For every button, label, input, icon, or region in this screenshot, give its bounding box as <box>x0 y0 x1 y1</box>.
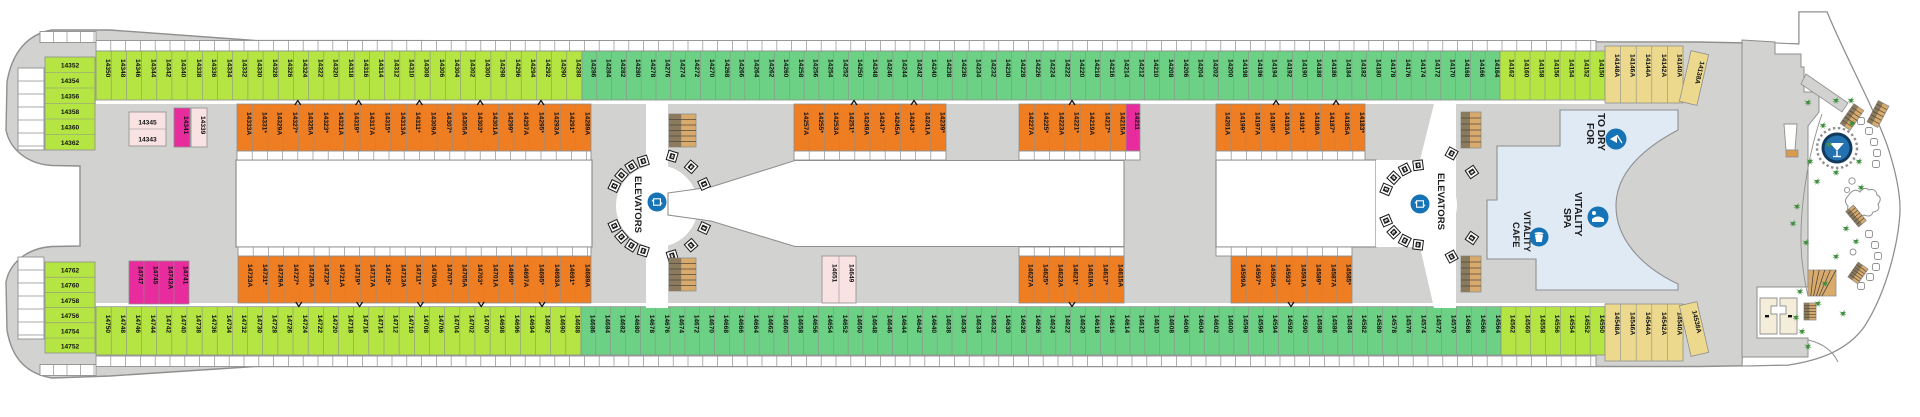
svg-text:14616: 14616 <box>1108 315 1115 334</box>
svg-text:14713A: 14713A <box>399 264 406 287</box>
svg-text:14348: 14348 <box>119 59 126 78</box>
svg-text:14326: 14326 <box>286 59 293 78</box>
svg-text:14324: 14324 <box>301 59 308 78</box>
svg-text:14566: 14566 <box>1479 315 1486 334</box>
svg-text:14636: 14636 <box>960 315 967 334</box>
svg-text:14705A: 14705A <box>461 264 468 287</box>
svg-text:14691*: 14691* <box>568 264 575 285</box>
svg-text:14262: 14262 <box>767 59 774 78</box>
svg-text:14762: 14762 <box>61 268 80 275</box>
svg-text:14562: 14562 <box>1509 315 1516 334</box>
svg-text:14674: 14674 <box>678 315 685 334</box>
svg-text:14268: 14268 <box>723 59 730 78</box>
svg-text:14345: 14345 <box>138 120 157 127</box>
svg-text:14585*: 14585* <box>1345 264 1352 285</box>
svg-text:14740: 14740 <box>180 315 187 334</box>
svg-text:14576: 14576 <box>1405 315 1412 334</box>
svg-text:14232: 14232 <box>989 59 996 78</box>
svg-text:14729A: 14729A <box>277 264 284 287</box>
svg-text:14194: 14194 <box>1271 59 1278 78</box>
svg-text:14552: 14552 <box>1583 315 1590 334</box>
svg-text:14225*: 14225* <box>1042 112 1049 133</box>
svg-text:14343: 14343 <box>138 137 157 144</box>
svg-text:14170: 14170 <box>1448 59 1455 78</box>
svg-text:14758: 14758 <box>61 298 80 305</box>
svg-text:14294: 14294 <box>529 59 536 78</box>
svg-text:14289A: 14289A <box>584 112 591 135</box>
svg-text:14707*: 14707* <box>445 264 452 285</box>
svg-text:14632: 14632 <box>989 315 996 334</box>
svg-text:14250: 14250 <box>856 59 863 78</box>
svg-text:14184: 14184 <box>1345 59 1352 78</box>
svg-text:14340: 14340 <box>180 59 187 78</box>
svg-text:14709A: 14709A <box>430 264 437 287</box>
svg-text:14180: 14180 <box>1374 59 1381 78</box>
svg-text:14305A: 14305A <box>460 112 467 135</box>
svg-text:14148A: 14148A <box>1613 54 1620 77</box>
svg-text:14331*: 14331* <box>260 112 267 133</box>
svg-text:14746: 14746 <box>134 315 141 334</box>
svg-text:14554: 14554 <box>1568 315 1575 334</box>
svg-text:14217*: 14217* <box>1103 112 1110 133</box>
svg-text:14624: 14624 <box>1049 315 1056 334</box>
svg-text:14309A: 14309A <box>430 112 437 135</box>
svg-text:14642: 14642 <box>915 315 922 334</box>
svg-text:14204: 14204 <box>1197 59 1204 78</box>
svg-text:14712: 14712 <box>392 315 399 334</box>
svg-text:14288: 14288 <box>575 59 582 78</box>
svg-text:14162: 14162 <box>1508 59 1515 78</box>
svg-text:14760: 14760 <box>61 283 80 290</box>
svg-text:14700: 14700 <box>483 315 490 334</box>
svg-text:14342: 14342 <box>165 59 172 78</box>
svg-text:14264: 14264 <box>753 59 760 78</box>
svg-text:ELEVATORS: ELEVATORS <box>1435 173 1446 231</box>
svg-text:14164: 14164 <box>1493 59 1500 78</box>
svg-text:14197A: 14197A <box>1254 112 1261 135</box>
svg-text:14239*: 14239* <box>939 112 946 133</box>
svg-text:14214: 14214 <box>1123 59 1130 78</box>
svg-text:14544A: 14544A <box>1644 312 1651 335</box>
svg-text:14260: 14260 <box>782 59 789 78</box>
svg-text:14251*: 14251* <box>847 112 854 133</box>
svg-text:14154: 14154 <box>1568 59 1575 78</box>
svg-text:14627A: 14627A <box>1027 264 1034 287</box>
svg-text:14188: 14188 <box>1315 59 1322 78</box>
svg-text:14570: 14570 <box>1449 315 1456 334</box>
svg-text:14198: 14198 <box>1241 59 1248 78</box>
svg-text:14658: 14658 <box>796 315 803 334</box>
svg-text:14158: 14158 <box>1538 59 1545 78</box>
svg-text:14293A: 14293A <box>553 112 560 135</box>
svg-text:14321A: 14321A <box>337 112 344 135</box>
svg-text:14722: 14722 <box>316 315 323 334</box>
svg-text:14236: 14236 <box>960 59 967 78</box>
svg-text:14315*: 14315* <box>383 112 390 133</box>
svg-text:14142A: 14142A <box>1660 54 1667 77</box>
svg-text:ELEVATORS: ELEVATORS <box>632 176 643 234</box>
svg-text:14650: 14650 <box>856 315 863 334</box>
svg-text:14360: 14360 <box>61 125 80 132</box>
svg-text:14311*: 14311* <box>414 112 421 133</box>
svg-text:14312: 14312 <box>392 59 399 78</box>
svg-text:14612: 14612 <box>1138 315 1145 334</box>
svg-text:14717A: 14717A <box>369 264 376 287</box>
svg-text:14719*: 14719* <box>353 264 360 285</box>
svg-text:14596: 14596 <box>1256 315 1263 334</box>
svg-text:14572: 14572 <box>1434 315 1441 334</box>
svg-text:14247*: 14247* <box>878 112 885 133</box>
svg-text:14726: 14726 <box>286 315 293 334</box>
svg-text:14574: 14574 <box>1420 315 1427 334</box>
svg-text:14582: 14582 <box>1360 315 1367 334</box>
svg-text:14600: 14600 <box>1227 315 1234 334</box>
svg-text:14291*: 14291* <box>568 112 575 133</box>
svg-text:14644: 14644 <box>900 315 907 334</box>
svg-text:TO DRY: TO DRY <box>1595 113 1606 151</box>
svg-text:14622: 14622 <box>1064 315 1071 334</box>
svg-text:14210: 14210 <box>1152 59 1159 78</box>
svg-text:14290: 14290 <box>559 59 566 78</box>
svg-text:14302: 14302 <box>468 59 475 78</box>
svg-text:14166: 14166 <box>1478 59 1485 78</box>
svg-text:14550: 14550 <box>1598 315 1605 334</box>
svg-text:14593*: 14593* <box>1284 264 1291 285</box>
svg-text:14731*: 14731* <box>261 264 268 285</box>
svg-text:14308: 14308 <box>423 59 430 78</box>
svg-text:14747: 14747 <box>137 266 144 285</box>
svg-text:14246: 14246 <box>886 59 893 78</box>
svg-text:14696: 14696 <box>513 315 520 334</box>
svg-text:14718: 14718 <box>346 315 353 334</box>
svg-text:14704: 14704 <box>452 315 459 334</box>
svg-text:14564: 14564 <box>1494 315 1501 334</box>
svg-text:14193A: 14193A <box>1283 112 1290 135</box>
svg-text:14654: 14654 <box>826 315 833 334</box>
svg-text:14652: 14652 <box>841 315 848 334</box>
svg-text:14199*: 14199* <box>1239 112 1246 133</box>
svg-text:14256: 14256 <box>812 59 819 78</box>
svg-text:14734: 14734 <box>225 315 232 334</box>
svg-text:14684: 14684 <box>604 315 611 334</box>
svg-text:14725A: 14725A <box>307 264 314 287</box>
svg-text:14542A: 14542A <box>1660 312 1667 335</box>
svg-text:14338: 14338 <box>195 59 202 78</box>
svg-text:14222: 14222 <box>1063 59 1070 78</box>
svg-text:14625*: 14625* <box>1042 264 1049 285</box>
svg-text:14270: 14270 <box>708 59 715 78</box>
svg-text:14736: 14736 <box>210 315 217 334</box>
svg-text:14319*: 14319* <box>353 112 360 133</box>
svg-text:14630: 14630 <box>1004 315 1011 334</box>
svg-text:14711*: 14711* <box>415 264 422 285</box>
svg-text:14266: 14266 <box>738 59 745 78</box>
svg-text:14327*: 14327* <box>291 112 298 133</box>
svg-text:14284: 14284 <box>604 59 611 78</box>
svg-text:14660: 14660 <box>782 315 789 334</box>
svg-text:14742: 14742 <box>164 315 171 334</box>
svg-text:14699*: 14699* <box>507 264 514 285</box>
svg-text:14144A: 14144A <box>1644 54 1651 77</box>
svg-text:14215A: 14215A <box>1119 112 1126 135</box>
svg-text:14352: 14352 <box>61 63 80 70</box>
svg-text:14599A: 14599A <box>1239 264 1246 287</box>
svg-text:14619A: 14619A <box>1087 264 1094 287</box>
svg-text:14297A: 14297A <box>522 112 529 135</box>
svg-text:14356: 14356 <box>61 94 80 101</box>
svg-text:14190: 14190 <box>1300 59 1307 78</box>
svg-text:14695*: 14695* <box>538 264 545 285</box>
svg-text:14168: 14168 <box>1463 59 1470 78</box>
svg-text:14662: 14662 <box>767 315 774 334</box>
svg-text:14227A: 14227A <box>1027 112 1034 135</box>
svg-text:14694: 14694 <box>528 315 535 334</box>
svg-text:14614: 14614 <box>1123 315 1130 334</box>
svg-text:14664: 14664 <box>752 315 759 334</box>
svg-text:14640: 14640 <box>930 315 937 334</box>
svg-text:14329A: 14329A <box>276 112 283 135</box>
svg-text:14332: 14332 <box>241 59 248 78</box>
svg-text:14244: 14244 <box>901 59 908 78</box>
svg-text:14716: 14716 <box>361 315 368 334</box>
svg-text:14620: 14620 <box>1078 315 1085 334</box>
svg-text:14656: 14656 <box>811 315 818 334</box>
svg-text:14201A: 14201A <box>1224 112 1231 135</box>
svg-text:14715*: 14715* <box>384 264 391 285</box>
svg-text:14230: 14230 <box>1004 59 1011 78</box>
svg-text:14212: 14212 <box>1137 59 1144 78</box>
svg-text:14750: 14750 <box>104 315 111 334</box>
svg-text:FOR: FOR <box>1584 123 1595 145</box>
svg-text:14738: 14738 <box>195 315 202 334</box>
svg-text:14586: 14586 <box>1331 315 1338 334</box>
svg-text:14317A: 14317A <box>368 112 375 135</box>
svg-text:14160: 14160 <box>1523 59 1530 78</box>
svg-text:14224: 14224 <box>1049 59 1056 78</box>
svg-text:14710: 14710 <box>407 315 414 334</box>
svg-text:14336: 14336 <box>210 59 217 78</box>
svg-text:14240: 14240 <box>930 59 937 78</box>
svg-text:14606: 14606 <box>1182 315 1189 334</box>
svg-text:14590: 14590 <box>1301 315 1308 334</box>
svg-text:14330: 14330 <box>256 59 263 78</box>
svg-text:14185A: 14185A <box>1343 112 1350 135</box>
svg-text:14156: 14156 <box>1553 59 1560 78</box>
svg-text:14745: 14745 <box>152 266 159 285</box>
svg-text:14282: 14282 <box>619 59 626 78</box>
svg-text:14594: 14594 <box>1271 315 1278 334</box>
svg-text:14548A: 14548A <box>1613 312 1620 335</box>
svg-text:14354: 14354 <box>61 78 80 85</box>
svg-text:14241A: 14241A <box>923 112 930 135</box>
svg-text:14651: 14651 <box>831 264 838 283</box>
svg-text:14328: 14328 <box>271 59 278 78</box>
svg-text:14245A: 14245A <box>893 112 900 135</box>
svg-text:14666: 14666 <box>737 315 744 334</box>
svg-text:14680: 14680 <box>633 315 640 334</box>
svg-text:SPA: SPA <box>1561 208 1572 229</box>
svg-text:14690: 14690 <box>559 315 566 334</box>
svg-text:14140A: 14140A <box>1675 54 1682 77</box>
svg-text:14578: 14578 <box>1390 315 1397 334</box>
svg-text:14615A: 14615A <box>1117 264 1124 287</box>
svg-text:14358: 14358 <box>61 109 80 116</box>
svg-text:14191*: 14191* <box>1298 112 1305 133</box>
svg-text:14152: 14152 <box>1583 59 1590 78</box>
svg-text:14756: 14756 <box>61 313 80 320</box>
svg-text:14295*: 14295* <box>537 112 544 133</box>
svg-text:14350: 14350 <box>104 59 111 78</box>
svg-text:14192: 14192 <box>1286 59 1293 78</box>
svg-text:14688: 14688 <box>574 315 581 334</box>
svg-text:14322: 14322 <box>316 59 323 78</box>
svg-text:14670: 14670 <box>707 315 714 334</box>
svg-text:14598: 14598 <box>1242 315 1249 334</box>
svg-text:14172: 14172 <box>1434 59 1441 78</box>
svg-text:14702: 14702 <box>468 315 475 334</box>
svg-text:14196: 14196 <box>1256 59 1263 78</box>
svg-text:14316: 14316 <box>362 59 369 78</box>
svg-text:14686: 14686 <box>589 315 596 334</box>
svg-text:14339: 14339 <box>199 116 206 135</box>
svg-text:14727*: 14727* <box>292 264 299 285</box>
svg-text:CAFE: CAFE <box>1511 222 1522 248</box>
svg-text:14306: 14306 <box>438 59 445 78</box>
svg-text:14638: 14638 <box>945 315 952 334</box>
svg-text:14307*: 14307* <box>445 112 452 133</box>
svg-text:14618: 14618 <box>1093 315 1100 334</box>
svg-text:14257A: 14257A <box>802 112 809 135</box>
svg-text:14649: 14649 <box>848 264 855 283</box>
svg-text:14626: 14626 <box>1034 315 1041 334</box>
svg-text:14346: 14346 <box>134 59 141 78</box>
svg-text:14242: 14242 <box>915 59 922 78</box>
svg-text:14255*: 14255* <box>817 112 824 133</box>
svg-text:VITALITY: VITALITY <box>1572 192 1583 237</box>
svg-text:14206: 14206 <box>1182 59 1189 78</box>
svg-text:14320: 14320 <box>332 59 339 78</box>
svg-text:14741: 14741 <box>182 266 189 285</box>
svg-text:14692: 14692 <box>543 315 550 334</box>
svg-text:14278: 14278 <box>649 59 656 78</box>
svg-text:14724: 14724 <box>301 315 308 334</box>
svg-text:14219A: 14219A <box>1088 112 1095 135</box>
svg-text:14558: 14558 <box>1538 315 1545 334</box>
svg-text:14591A: 14591A <box>1299 264 1306 287</box>
svg-text:14560: 14560 <box>1524 315 1531 334</box>
svg-text:14228: 14228 <box>1019 59 1026 78</box>
svg-text:14216: 14216 <box>1108 59 1115 78</box>
svg-text:14292: 14292 <box>544 59 551 78</box>
svg-text:14723*: 14723* <box>323 264 330 285</box>
svg-text:14254: 14254 <box>827 59 834 78</box>
svg-text:14693A: 14693A <box>553 264 560 287</box>
svg-text:14323*: 14323* <box>322 112 329 133</box>
svg-text:14682: 14682 <box>618 315 625 334</box>
svg-text:14274: 14274 <box>678 59 685 78</box>
svg-text:14610: 14610 <box>1153 315 1160 334</box>
svg-text:14676: 14676 <box>663 315 670 334</box>
svg-text:14748: 14748 <box>119 315 126 334</box>
svg-text:14728: 14728 <box>271 315 278 334</box>
svg-text:14678: 14678 <box>648 315 655 334</box>
svg-text:14634: 14634 <box>974 315 981 334</box>
svg-text:14189A: 14189A <box>1313 112 1320 135</box>
svg-text:14701A: 14701A <box>491 264 498 287</box>
svg-text:14697A: 14697A <box>522 264 529 287</box>
svg-text:14272: 14272 <box>693 59 700 78</box>
svg-text:14602: 14602 <box>1212 315 1219 334</box>
svg-text:14202: 14202 <box>1212 59 1219 78</box>
svg-text:14587A: 14587A <box>1330 264 1337 287</box>
svg-text:14706: 14706 <box>437 315 444 334</box>
svg-text:14248: 14248 <box>871 59 878 78</box>
svg-text:14595A: 14595A <box>1269 264 1276 287</box>
svg-text:14208: 14208 <box>1167 59 1174 78</box>
svg-text:14223A: 14223A <box>1057 112 1064 135</box>
svg-text:14714: 14714 <box>377 315 384 334</box>
svg-text:14303*: 14303* <box>476 112 483 133</box>
svg-text:14301A: 14301A <box>491 112 498 135</box>
svg-text:14720: 14720 <box>331 315 338 334</box>
svg-text:14226: 14226 <box>1034 59 1041 78</box>
svg-text:14743A: 14743A <box>167 266 174 289</box>
svg-text:14604: 14604 <box>1197 315 1204 334</box>
svg-text:14200: 14200 <box>1226 59 1233 78</box>
svg-text:14333A: 14333A <box>245 112 252 135</box>
svg-text:14146A: 14146A <box>1629 54 1636 77</box>
svg-text:14300: 14300 <box>484 59 491 78</box>
svg-text:14334: 14334 <box>225 59 232 78</box>
svg-text:14186: 14186 <box>1330 59 1337 78</box>
svg-text:14238: 14238 <box>945 59 952 78</box>
svg-text:14362: 14362 <box>61 140 80 147</box>
svg-text:14150: 14150 <box>1598 59 1605 78</box>
svg-text:14221*: 14221* <box>1073 112 1080 133</box>
svg-text:14623A: 14623A <box>1057 264 1064 287</box>
svg-text:14698: 14698 <box>498 315 505 334</box>
svg-text:14588: 14588 <box>1316 315 1323 334</box>
svg-text:14195*: 14195* <box>1268 112 1275 133</box>
svg-text:14187*: 14187* <box>1328 112 1335 133</box>
svg-text:14668: 14668 <box>722 315 729 334</box>
svg-text:14648: 14648 <box>871 315 878 334</box>
svg-text:14304: 14304 <box>453 59 460 78</box>
svg-text:14182: 14182 <box>1360 59 1367 78</box>
svg-text:14174: 14174 <box>1419 59 1426 78</box>
svg-text:14234: 14234 <box>975 59 982 78</box>
svg-text:14721A: 14721A <box>338 264 345 287</box>
svg-text:14211: 14211 <box>1133 112 1140 130</box>
svg-text:14220: 14220 <box>1078 59 1085 78</box>
svg-text:14249A: 14249A <box>863 112 870 135</box>
svg-text:14243*: 14243* <box>908 112 915 133</box>
svg-text:14608: 14608 <box>1167 315 1174 334</box>
svg-text:14341: 14341 <box>182 116 189 135</box>
svg-text:14280: 14280 <box>634 59 641 78</box>
svg-text:14744: 14744 <box>149 315 156 334</box>
svg-text:14730: 14730 <box>255 315 262 334</box>
svg-text:14299*: 14299* <box>507 112 514 133</box>
svg-text:14689A: 14689A <box>584 264 591 287</box>
svg-text:14253A: 14253A <box>832 112 839 135</box>
svg-text:14286: 14286 <box>590 59 597 78</box>
svg-text:14568: 14568 <box>1464 315 1471 334</box>
svg-text:14546A: 14546A <box>1629 312 1636 335</box>
svg-text:14318: 14318 <box>347 59 354 78</box>
svg-text:14314: 14314 <box>377 59 384 78</box>
svg-text:14178: 14178 <box>1389 59 1396 78</box>
